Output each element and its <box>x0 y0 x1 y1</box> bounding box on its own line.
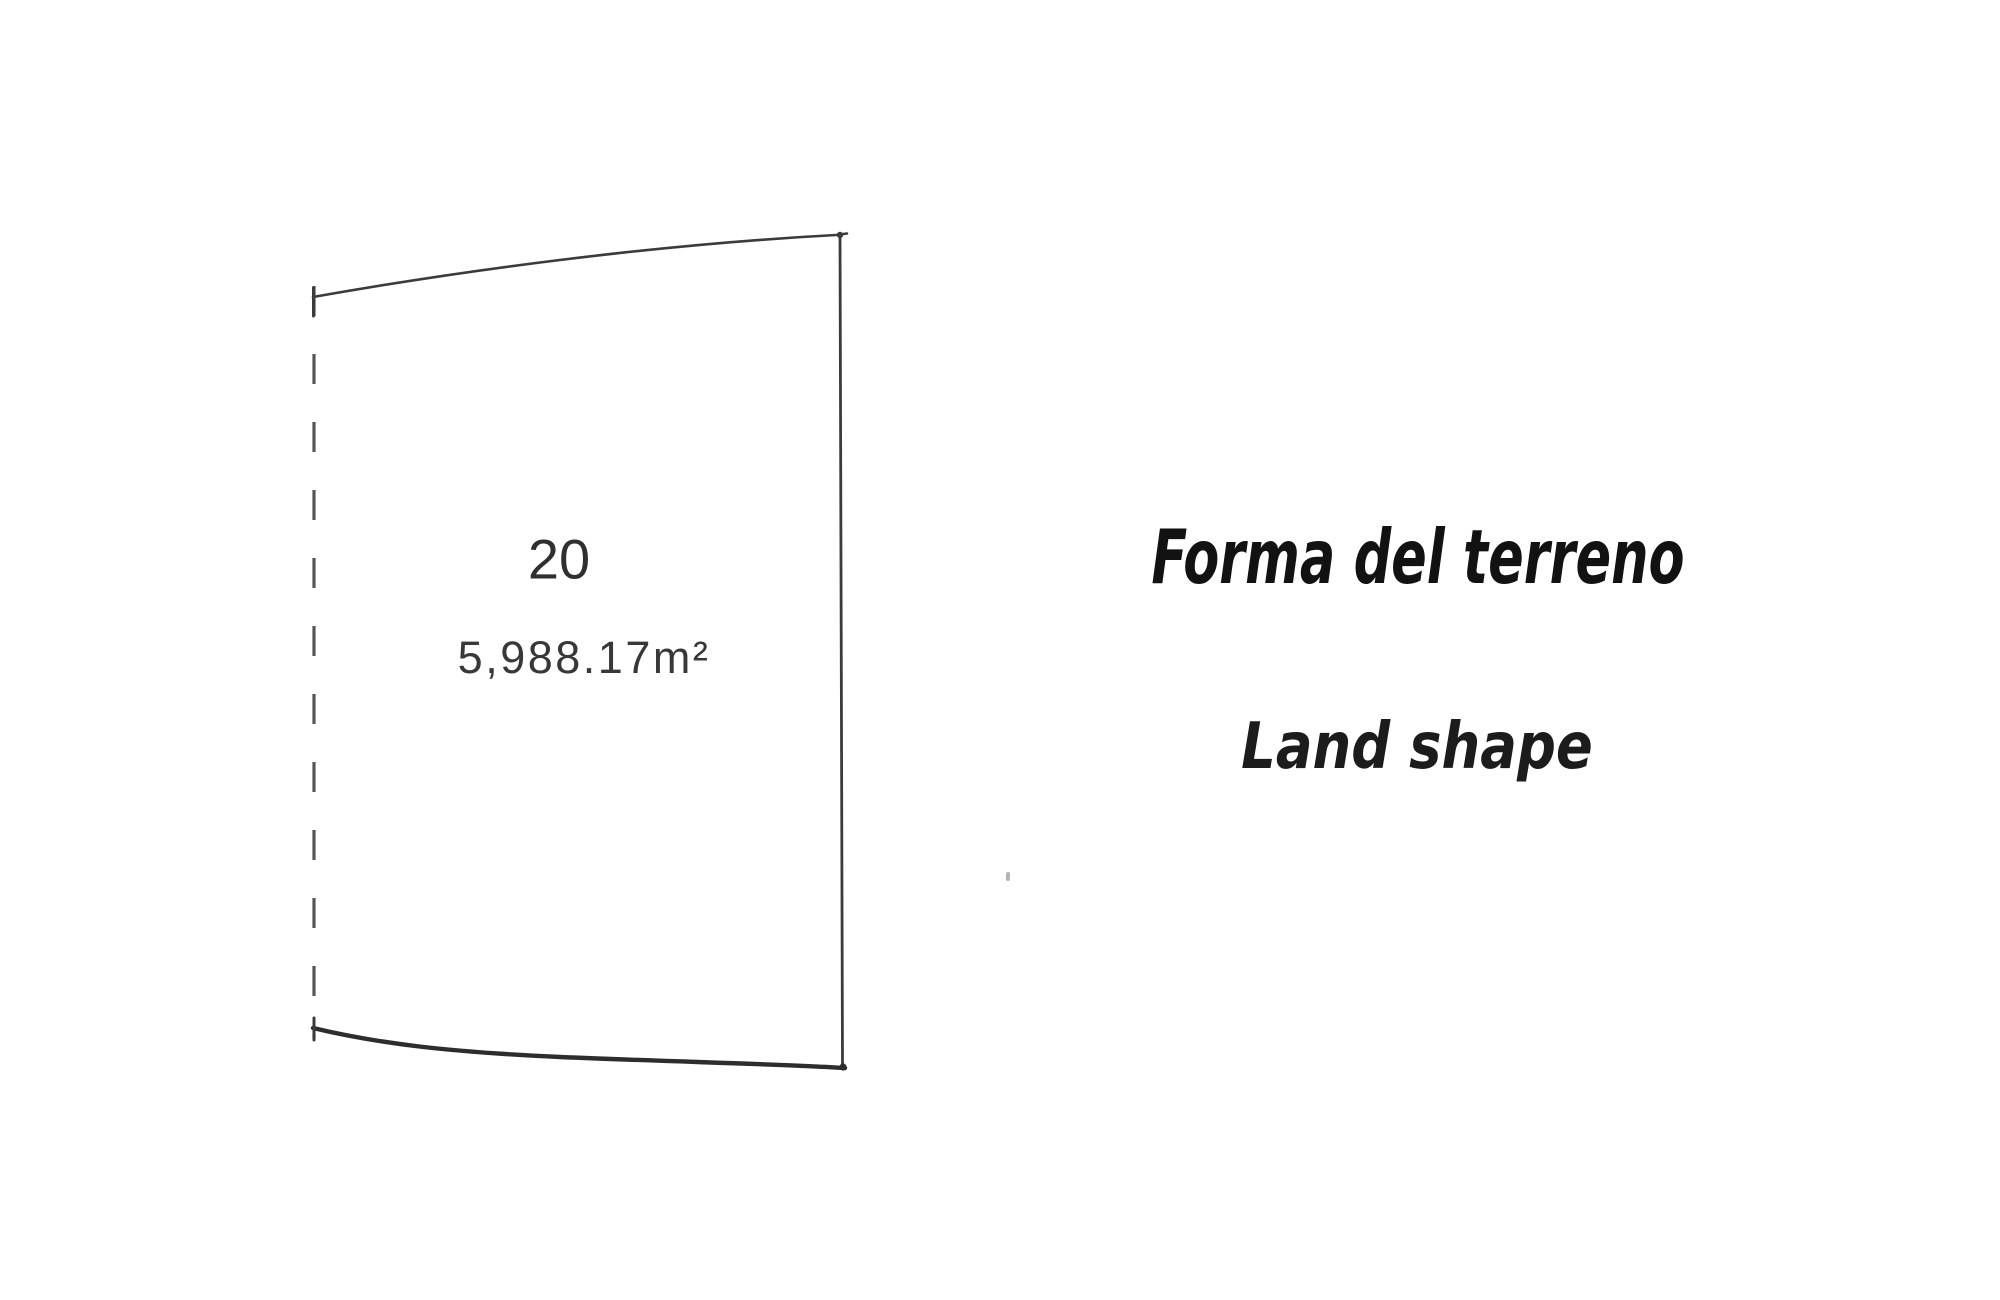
title-english: Land shape <box>1241 710 1593 784</box>
parcel-top-boundary <box>313 234 847 298</box>
parcel-bottom-boundary <box>313 1028 845 1068</box>
corner-dot-bottom-right <box>839 1063 846 1070</box>
parcel-drawing <box>0 0 2000 1300</box>
parcel-right-boundary <box>840 234 843 1066</box>
corner-dot-top-right <box>837 232 843 238</box>
title-italian: Forma del terreno <box>1151 513 1684 601</box>
land-shape-figure: 20 5,988.17m² Forma del terreno Land sha… <box>0 0 2000 1300</box>
speck-artifact <box>1006 872 1010 881</box>
lot-area: 5,988.17m² <box>458 632 711 684</box>
lot-number: 20 <box>528 527 590 592</box>
